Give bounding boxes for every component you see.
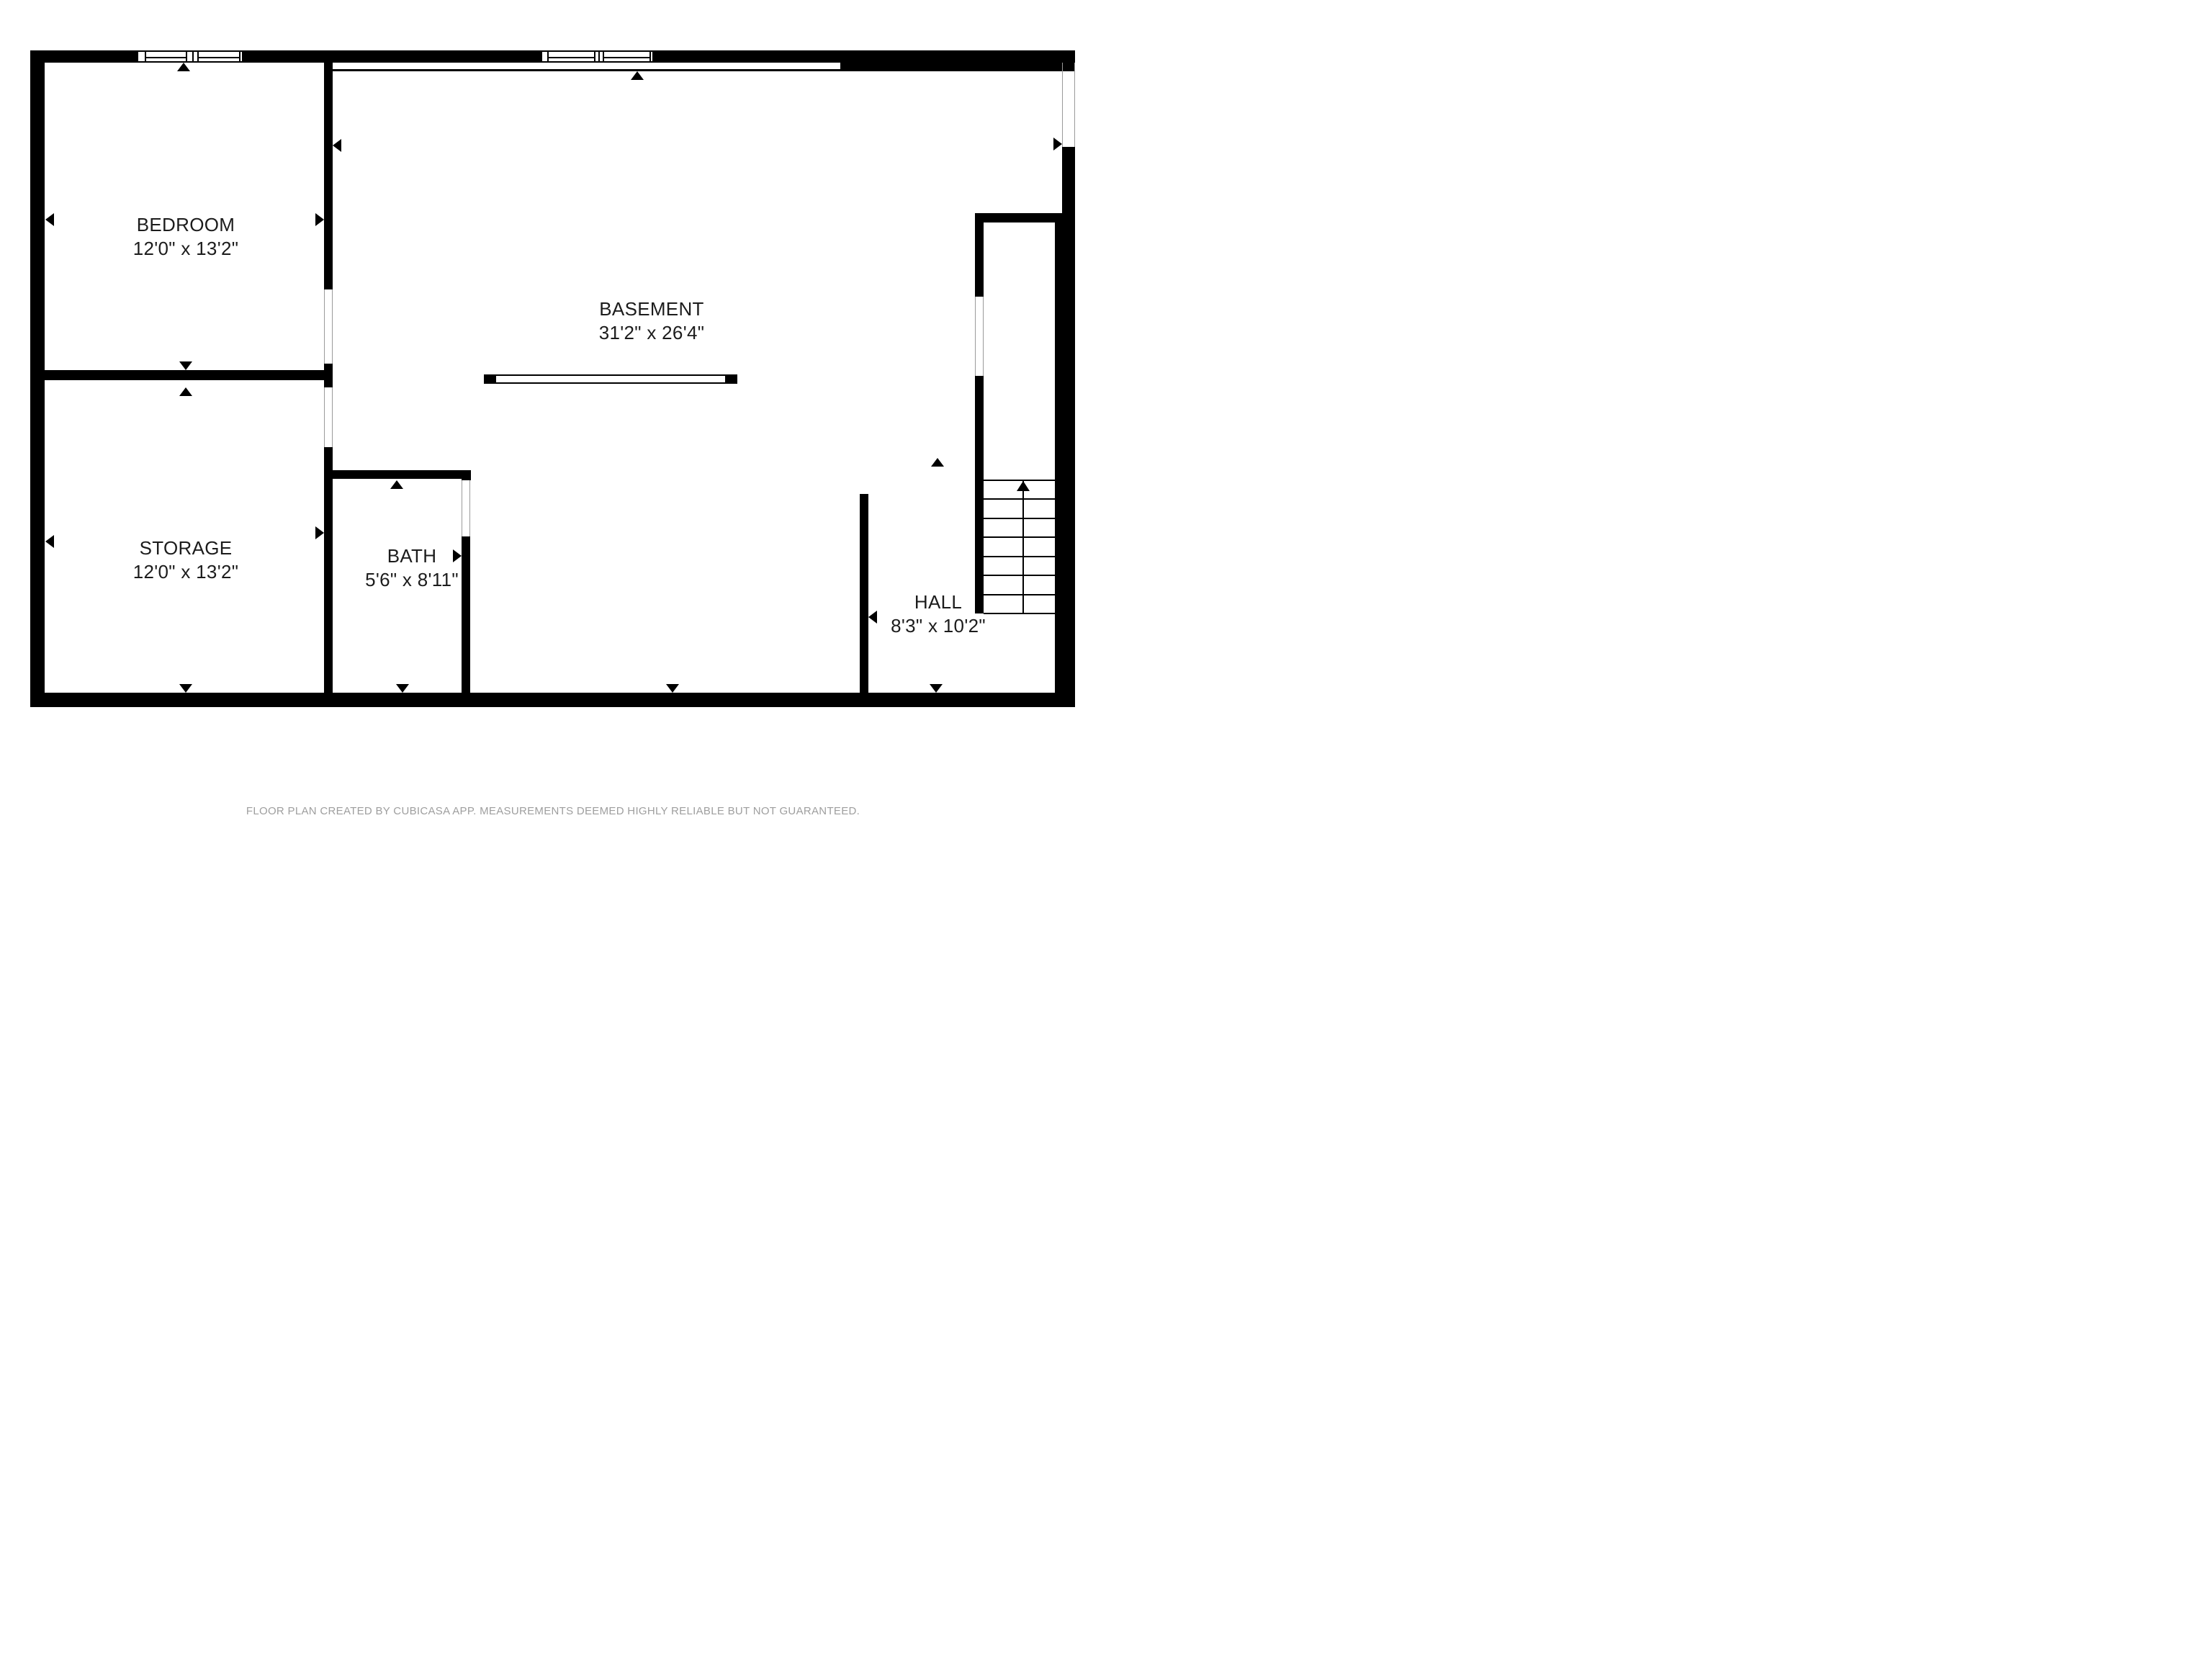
stair-tread-line [984,556,1055,557]
wall-bath-right [462,536,470,693]
room-dimensions: 31'2" x 26'4" [599,321,705,345]
room-label-storage: STORAGE 12'0" x 13'2" [133,536,239,584]
stair-tread-line [984,498,1055,500]
window-bedroom [137,50,243,63]
wall-right-lower [1055,222,1075,693]
window-frame-line [649,52,651,61]
dimension-arrow [179,361,192,370]
wall-bedroom-storage-divider [45,370,324,380]
wall-hall-left [860,494,868,693]
room-label-bedroom: BEDROOM 12'0" x 13'2" [133,213,239,261]
dimension-arrow [333,139,341,152]
opening-frame-line [975,297,976,376]
dimension-arrow [868,611,877,624]
stair-tread-line [984,594,1055,595]
dimension-arrow [1053,138,1062,150]
room-name: BASEMENT [599,297,705,321]
wall-bedroom-right [324,62,333,289]
window-sash-line [197,57,239,58]
wall-junction-block [324,364,333,387]
door-frame-line [462,480,462,536]
window-sash-line [547,57,594,58]
wall-storage-right [324,447,333,693]
beam-end-cap [485,376,496,382]
room-label-hall: HALL 8'3" x 10'2" [891,590,986,638]
room-name: HALL [891,590,986,614]
wall-top-inner-edge [332,69,841,71]
window-frame-line [239,52,240,61]
dimension-arrow [45,535,54,548]
window-sash-line [145,57,186,58]
stair-tread-line [984,575,1055,576]
window-frame-line [186,52,187,61]
door-frame-line [332,289,333,364]
wall-bath-top [333,470,471,479]
wall-right-upper [1062,147,1075,222]
door-frame-line [324,387,325,447]
dimension-arrow [45,213,54,226]
wall-bottom [30,693,1075,707]
room-dimensions: 8'3" x 10'2" [891,614,986,638]
wall-stair-top [975,213,1062,222]
door-frame-line [469,480,470,536]
dimension-arrow [390,480,403,489]
wall-stair-left-lower [975,376,984,613]
room-dimensions: 5'6" x 8'11" [365,568,459,592]
room-label-basement: BASEMENT 31'2" x 26'4" [599,297,705,345]
stair-tread-line [984,613,1055,614]
dimension-arrow [930,684,943,693]
dimension-arrow [315,526,324,539]
dimension-arrow [931,458,944,467]
opening-frame-line [983,297,984,376]
stair-tread-line [984,518,1055,519]
dimension-arrow [666,684,679,693]
opening-frame-line [1062,63,1063,147]
dimension-arrow [177,63,190,71]
room-name: BATH [365,544,459,568]
room-name: BEDROOM [133,213,239,237]
dimension-arrow [396,684,409,693]
room-dimensions: 12'0" x 13'2" [133,560,239,584]
wall-left [30,50,45,707]
dimension-arrow [179,684,192,693]
stairs-up-arrow [1017,481,1030,491]
room-name: STORAGE [133,536,239,560]
wall-bath-corner [462,470,471,480]
door-frame-line [324,289,325,364]
dimension-arrow [631,71,644,80]
window-frame-line [192,52,194,61]
room-label-bath: BATH 5'6" x 8'11" [365,544,459,592]
room-dimensions: 12'0" x 13'2" [133,237,239,261]
window-sash-line [603,57,649,58]
window-basement [541,50,654,63]
window-frame-line [594,52,595,61]
door-frame-line [332,387,333,447]
wall-stair-left-upper [975,222,984,297]
opening-frame-line [1074,63,1075,147]
dimension-arrow [179,387,192,396]
stair-center-line [1022,480,1024,614]
footer-disclaimer: FLOOR PLAN CREATED BY CUBICASA APP. MEAS… [246,805,860,817]
window-frame-line [598,52,600,61]
wall-top-thick-right [840,63,1075,71]
beam-end-cap [725,376,736,382]
floor-plan: BEDROOM 12'0" x 13'2" BASEMENT 31'2" x 2… [0,0,1106,829]
dimension-arrow [315,213,324,226]
support-beam [484,374,737,384]
stair-tread-line [984,536,1055,538]
